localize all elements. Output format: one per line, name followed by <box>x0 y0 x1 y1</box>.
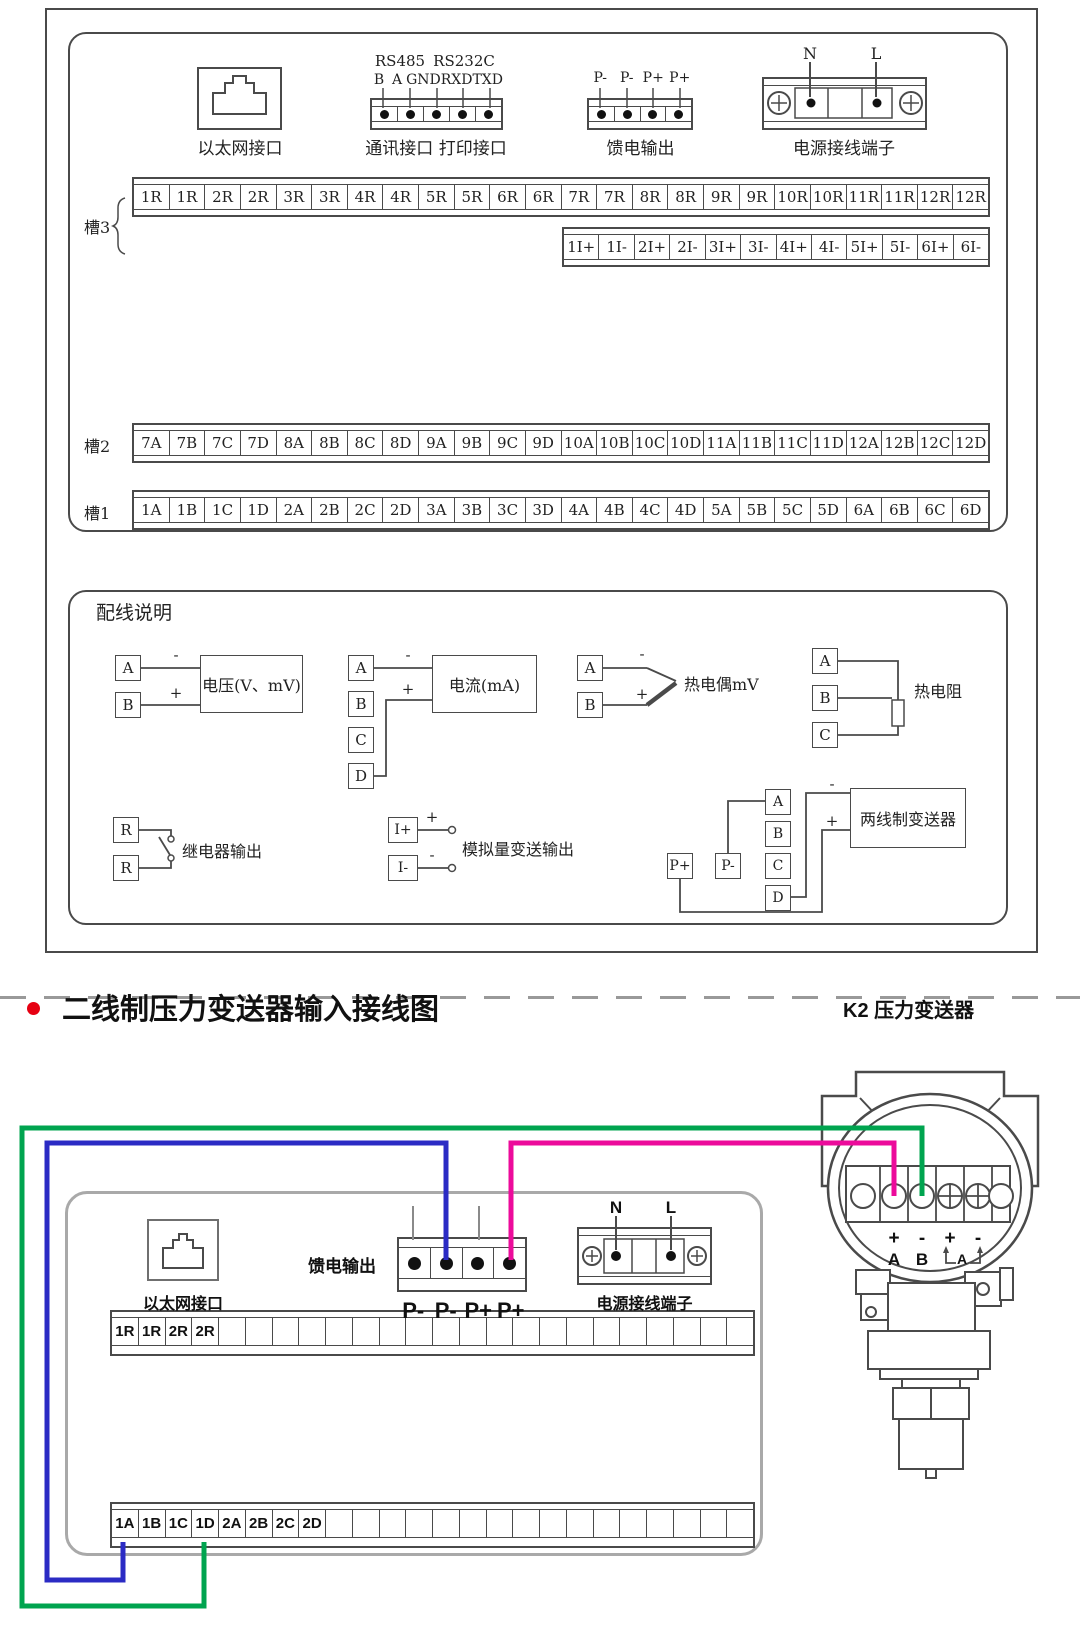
terminal-cell: 1D <box>240 498 276 522</box>
twowire-transmitter-box: 两线制变送器 <box>850 788 966 848</box>
terminal-cell: 2R <box>191 1318 218 1345</box>
terminal-cell: 8B <box>311 431 347 455</box>
terminal-cell <box>646 1510 673 1537</box>
wiring-diagram-page: 以太网接口 RS485 RS232C BAGNDRXDTXD 通讯接口 打印接口… <box>0 0 1080 1635</box>
tx-bracket-letter: A <box>957 1251 967 1267</box>
terminal-cell: 5A <box>703 498 739 522</box>
comm-terminal <box>423 107 449 121</box>
terminal-cell: 6A <box>846 498 882 522</box>
analog-terminal-iminus: I- <box>388 855 418 881</box>
analog-output-label: 模拟量变送输出 <box>462 836 574 860</box>
terminal-cell: 7R <box>596 185 632 209</box>
terminal-cell: 11A <box>703 431 739 455</box>
feed-terminal <box>589 107 614 121</box>
ethernet-port-box <box>197 67 282 130</box>
feed-terminal-block-bottom <box>397 1237 527 1292</box>
terminal-cell: 5I+ <box>846 235 881 259</box>
twowire-terminal-c: C <box>765 853 791 879</box>
comm-pin-label: GND <box>406 72 441 88</box>
terminal-cell: 5R <box>454 185 490 209</box>
feed-pin-label: P+ <box>667 70 694 86</box>
voltage-plus-sign: + <box>168 684 184 702</box>
terminal-cell: 7B <box>169 431 205 455</box>
terminal-cell: 6B <box>881 498 917 522</box>
power-l-label-bottom: L <box>651 1198 691 1218</box>
terminal-cell: 2C <box>272 1510 299 1537</box>
terminal-cell: 12C <box>917 431 953 455</box>
feed-pin-label: P- <box>614 70 641 86</box>
rs485-label: RS485 <box>368 52 432 70</box>
rtd-terminal-a: A <box>812 648 838 674</box>
feed-pin-labels: P-P-P+P+ <box>587 70 693 86</box>
power-n-label-bottom: N <box>596 1198 636 1218</box>
ethernet-label-bottom: 以太网接口 <box>133 1290 233 1314</box>
analog-plus-sign: + <box>424 808 440 826</box>
twowire-terminal-d: D <box>765 885 791 911</box>
comm-pin-label: RXD <box>441 72 473 88</box>
feed-pin-label: P- <box>587 70 614 86</box>
terminal-cell: 3C <box>489 498 525 522</box>
terminal-cell: 9D <box>525 431 561 455</box>
terminal-cell <box>325 1510 352 1537</box>
terminal-cell <box>700 1318 727 1345</box>
feed-pin-label: P- <box>430 1298 463 1324</box>
terminal-cell: 2C <box>347 498 383 522</box>
terminal-cell: 2I- <box>669 235 704 259</box>
terminal-cell: 4A <box>561 498 597 522</box>
terminal-cell: 7D <box>240 431 276 455</box>
terminal-cell <box>726 1510 753 1537</box>
terminal-cell: 5C <box>774 498 810 522</box>
terminal-cell: 5I- <box>882 235 917 259</box>
terminal-cell: 1B <box>138 1510 165 1537</box>
terminal-cell: 2R <box>204 185 240 209</box>
terminal-cell <box>566 1510 593 1537</box>
terminal-cell: 2A <box>218 1510 245 1537</box>
current-terminal-a: A <box>348 655 374 681</box>
feed-terminal <box>665 107 691 121</box>
rtd-terminal-c: C <box>812 722 838 748</box>
power-terminal-block <box>762 77 927 130</box>
twowire-pminus: P- <box>715 853 741 879</box>
feed-pin-label: P+ <box>495 1298 528 1324</box>
rtd-terminal-b: B <box>812 685 838 711</box>
terminal-cell: 4I- <box>811 235 846 259</box>
analog-terminal-iplus: I+ <box>388 817 418 843</box>
terminal-cell: 1C <box>165 1510 192 1537</box>
terminal-cell: 3I+ <box>705 235 740 259</box>
terminal-cell: 7C <box>204 431 240 455</box>
terminal-cell: 11B <box>739 431 775 455</box>
terminal-cell <box>459 1510 486 1537</box>
comm-print-label: 通讯接口 打印接口 <box>365 134 507 159</box>
terminal-cell: 1R <box>134 185 169 209</box>
terminal-cell: 2D <box>382 498 418 522</box>
terminal-cell: 6R <box>525 185 561 209</box>
feed-terminal <box>614 107 640 121</box>
bottom-section-title: 二线制压力变送器输入接线图 <box>62 986 439 1028</box>
tc-terminal-b: B <box>577 692 603 718</box>
feed-output-label: 馈电输出 <box>588 134 693 159</box>
comm-terminal <box>475 107 501 121</box>
feed-terminal-block <box>587 98 693 130</box>
terminal-cell: 2I+ <box>634 235 669 259</box>
terminal-cell <box>673 1510 700 1537</box>
relay-terminal-r2: R <box>113 855 139 881</box>
tx-letter: A <box>880 1250 908 1270</box>
terminal-cell: 9A <box>418 431 454 455</box>
terminal-cell: 10R <box>810 185 846 209</box>
terminal-cell: 1R <box>169 185 205 209</box>
analog-minus-sign: - <box>424 846 440 864</box>
terminal-cell: 9R <box>739 185 775 209</box>
terminal-cell: 6D <box>952 498 988 522</box>
comm-terminal-block <box>370 98 503 130</box>
terminal-cell: 8C <box>347 431 383 455</box>
terminal-cell <box>646 1318 673 1345</box>
terminal-cell: 9C <box>489 431 525 455</box>
k2-transmitter-title: K2 压力变送器 <box>843 994 974 1023</box>
current-box: 电流(mA) <box>432 655 537 713</box>
terminal-cell <box>352 1510 379 1537</box>
tc-plus-sign: + <box>634 685 650 703</box>
rs232c-label: RS232C <box>430 52 498 70</box>
thermocouple-label: 热电偶mV <box>684 671 759 695</box>
terminal-cell: 1I+ <box>564 235 598 259</box>
terminal-cell: 1C <box>204 498 240 522</box>
power-terminal-label: 电源接线端子 <box>758 134 930 159</box>
terminal-cell <box>593 1510 620 1537</box>
terminal-cell: 6I- <box>953 235 988 259</box>
terminal-cell: 3A <box>418 498 454 522</box>
terminal-cell: 3D <box>525 498 561 522</box>
slot2-strip: 7A7B7C7D8A8B8C8D9A9B9C9D10A10B10C10D11A1… <box>132 423 990 463</box>
terminal-cell <box>619 1510 646 1537</box>
power-terminal-block-bottom <box>577 1227 712 1285</box>
twowire-terminal-a: A <box>765 789 791 815</box>
feed-pin-label: P- <box>397 1298 430 1324</box>
terminal-cell: 3R <box>276 185 312 209</box>
terminal-cell <box>539 1510 566 1537</box>
terminal-cell <box>512 1510 539 1537</box>
terminal-cell <box>700 1510 727 1537</box>
terminal-cell: 6I+ <box>917 235 952 259</box>
tx-letter-labels: AB <box>880 1250 936 1270</box>
terminal-cell: 12R <box>952 185 988 209</box>
terminal-cell: 12R <box>917 185 953 209</box>
comm-pin-labels: BAGNDRXDTXD <box>370 72 503 88</box>
feed-terminal <box>493 1248 525 1278</box>
voltage-minus-sign: - <box>168 646 184 664</box>
terminal-cell: 2B <box>311 498 347 522</box>
terminal-cell: 2B <box>245 1510 272 1537</box>
bullet-icon <box>27 1002 40 1015</box>
terminal-cell: 11R <box>846 185 882 209</box>
comm-pin-label: TXD <box>472 72 503 88</box>
terminal-cell <box>325 1318 352 1345</box>
tx-sign: + <box>936 1228 964 1250</box>
terminal-cell <box>405 1510 432 1537</box>
terminal-cell: 10C <box>632 431 668 455</box>
terminal-cell: 8R <box>667 185 703 209</box>
current-plus-sign: + <box>400 680 416 698</box>
current-minus-sign: - <box>400 646 416 664</box>
feed-output-label-bottom: 馈电输出 <box>308 1252 376 1277</box>
terminal-cell <box>726 1318 753 1345</box>
terminal-cell: 11C <box>774 431 810 455</box>
terminal-cell: 5B <box>739 498 775 522</box>
voltage-box: 电压(V、mV) <box>200 655 303 713</box>
terminal-cell: 2A <box>276 498 312 522</box>
terminal-cell: 11R <box>881 185 917 209</box>
terminal-cell <box>432 1510 459 1537</box>
slot3-label: 槽3 <box>84 214 118 238</box>
comm-terminal <box>397 107 423 121</box>
terminal-cell: 10B <box>596 431 632 455</box>
rtd-label: 热电阻 <box>914 678 962 702</box>
feed-pin-label: P+ <box>640 70 667 86</box>
terminal-cell: 9R <box>703 185 739 209</box>
terminal-cell: 10A <box>561 431 597 455</box>
terminal-cell: 3B <box>454 498 490 522</box>
terminal-cell: 1I- <box>598 235 633 259</box>
terminal-cell <box>673 1318 700 1345</box>
tx-letter: B <box>908 1250 936 1270</box>
relay-terminal-r1: R <box>113 817 139 843</box>
terminal-cell: 8A <box>276 431 312 455</box>
terminal-cell: 4D <box>667 498 703 522</box>
slot3-current-strip: 1I+1I-2I+2I-3I+3I-4I+4I-5I+5I-6I+6I- <box>562 227 990 267</box>
feed-pin-labels-bottom: P-P-P+P+ <box>397 1298 527 1324</box>
terminal-cell: 4B <box>596 498 632 522</box>
terminal-cell: 7R <box>561 185 597 209</box>
terminal-cell: 4C <box>632 498 668 522</box>
power-n-label: N <box>790 44 830 63</box>
terminal-cell <box>272 1318 299 1345</box>
terminal-cell: 5D <box>810 498 846 522</box>
current-terminal-b: B <box>348 691 374 717</box>
terminal-cell: 10R <box>774 185 810 209</box>
terminal-cell <box>539 1318 566 1345</box>
tc-minus-sign: - <box>634 645 650 663</box>
terminal-cell: 4R <box>347 185 383 209</box>
power-terminal-label-bottom: 电源接线端子 <box>577 1290 712 1314</box>
terminal-cell: 1R <box>112 1318 138 1345</box>
terminal-cell: 6R <box>489 185 525 209</box>
terminal-cell: 1R <box>138 1318 165 1345</box>
terminal-cell: 3R <box>311 185 347 209</box>
voltage-terminal-a: A <box>115 655 141 681</box>
terminal-cell: 6C <box>917 498 953 522</box>
twowire-pplus: P+ <box>667 853 693 879</box>
tx-sign: - <box>964 1228 992 1250</box>
slot1-strip: 1A1B1C1D2A2B2C2D3A3B3C3D4A4B4C4D5A5B5C5D… <box>132 490 990 530</box>
terminal-cell: 8R <box>632 185 668 209</box>
tx-sign: - <box>908 1228 936 1250</box>
tx-sign: + <box>880 1228 908 1250</box>
terminal-cell <box>593 1318 620 1345</box>
terminal-cell: 12B <box>881 431 917 455</box>
feed-terminal <box>640 107 666 121</box>
comm-pin-label: A <box>388 72 406 88</box>
terminal-cell: 11D <box>810 431 846 455</box>
power-l-label: L <box>856 44 896 63</box>
ethernet-label: 以太网接口 <box>185 134 295 159</box>
comm-pin-label: B <box>370 72 388 88</box>
pressure-transmitter-drawing <box>822 1072 1038 1478</box>
terminal-cell: 4R <box>382 185 418 209</box>
terminal-cell: 12D <box>952 431 988 455</box>
slot2-label: 槽2 <box>84 433 118 457</box>
terminal-cell: 9B <box>454 431 490 455</box>
comm-terminal <box>449 107 475 121</box>
terminal-cell: 1A <box>112 1510 138 1537</box>
terminal-cell: 3I- <box>740 235 775 259</box>
terminal-cell <box>566 1318 593 1345</box>
comm-terminal <box>372 107 397 121</box>
terminal-cell: 12A <box>846 431 882 455</box>
feed-terminal <box>399 1248 430 1278</box>
slot1-label: 槽1 <box>84 500 118 524</box>
terminal-cell: 2R <box>165 1318 192 1345</box>
terminal-cell: 2D <box>298 1510 325 1537</box>
terminal-cell: 5R <box>418 185 454 209</box>
wiring-instructions-panel <box>68 590 1008 925</box>
feed-terminal <box>462 1248 494 1278</box>
terminal-cell: 1D <box>191 1510 218 1537</box>
current-terminal-d: D <box>348 763 374 789</box>
terminal-cell <box>298 1318 325 1345</box>
terminal-cell <box>619 1318 646 1345</box>
terminal-cell: 1A <box>134 498 169 522</box>
feed-terminal <box>430 1248 462 1278</box>
terminal-cell <box>379 1510 406 1537</box>
terminal-cell <box>218 1318 245 1345</box>
terminal-cell: 8D <box>382 431 418 455</box>
tx-sign-labels: +-+- <box>880 1228 992 1250</box>
terminal-cell: 10D <box>667 431 703 455</box>
input-strip-bottom: 1A1B1C1D2A2B2C2D <box>110 1502 755 1548</box>
terminal-cell: 1B <box>169 498 205 522</box>
voltage-terminal-b: B <box>115 692 141 718</box>
terminal-cell: 4I+ <box>776 235 811 259</box>
wiring-instructions-title: 配线说明 <box>96 598 172 625</box>
feed-pin-label: P+ <box>462 1298 495 1324</box>
twowire-plus-sign: + <box>824 812 840 830</box>
relay-output-label: 继电器输出 <box>182 838 262 862</box>
twowire-terminal-b: B <box>765 821 791 847</box>
terminal-cell: 7A <box>134 431 169 455</box>
terminal-cell <box>486 1510 513 1537</box>
current-terminal-c: C <box>348 727 374 753</box>
terminal-cell: 2R <box>240 185 276 209</box>
terminal-cell <box>352 1318 379 1345</box>
twowire-minus-sign: - <box>824 775 840 793</box>
slot3-relay-strip: 1R1R2R2R3R3R4R4R5R5R6R6R7R7R8R8R9R9R10R1… <box>132 177 990 217</box>
terminal-cell <box>245 1318 272 1345</box>
ethernet-port-box-bottom <box>147 1219 219 1281</box>
tc-terminal-a: A <box>577 655 603 681</box>
